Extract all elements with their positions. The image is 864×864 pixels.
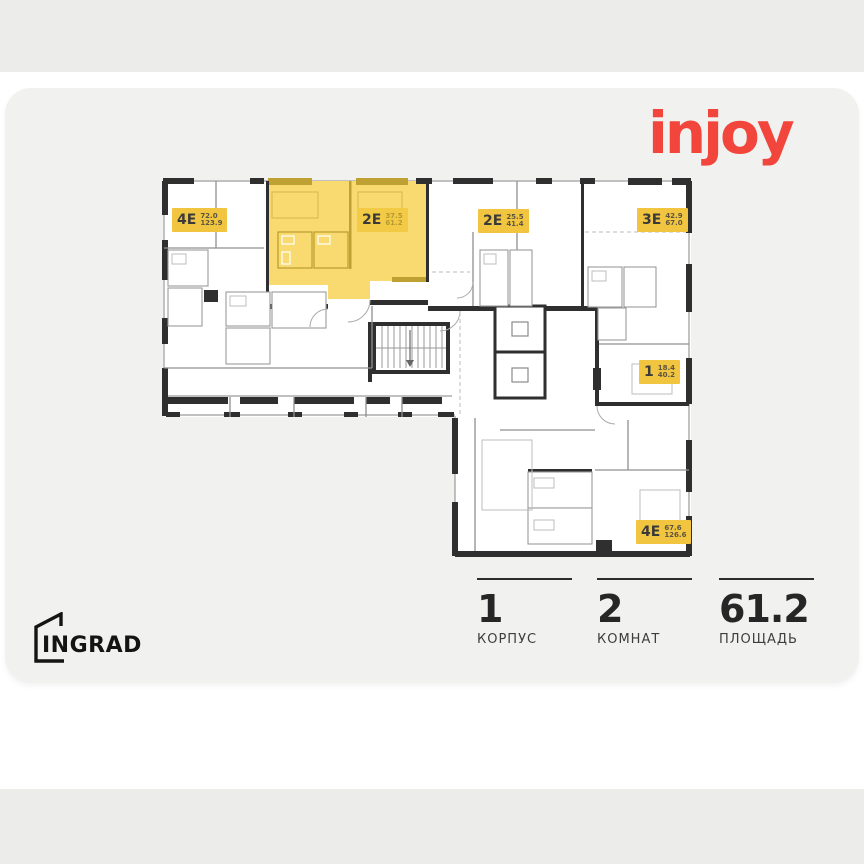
stat-label: КОРПУС (477, 632, 587, 647)
stat-divider (477, 578, 572, 580)
injoy-logo: injoy (648, 104, 848, 162)
unit-area-total: 61.2 (385, 220, 402, 228)
unit-label: 2Е (362, 213, 381, 227)
unit-badge-2e-middle: 2Е 25.541.4 (478, 209, 529, 233)
unit-area-total: 123.9 (200, 220, 222, 228)
unit-label: 2Е (483, 214, 502, 228)
ingrad-logo: INGRAD (33, 612, 142, 664)
background-strip-top (0, 0, 864, 72)
listing-floorplan-image: { "page": { "top_strip_color": "#ececeb"… (0, 0, 864, 864)
stat-divider (719, 578, 814, 580)
stat-value: 61.2 (719, 590, 829, 628)
stat-value: 2 (597, 590, 707, 628)
unit-label: 1 (644, 365, 654, 379)
stat-label: ПЛОЩАДЬ (719, 632, 829, 647)
stat-komnat: 2 КОМНАТ (597, 578, 707, 647)
unit-area-total: 126.6 (664, 532, 686, 540)
floorplan-drawing: 4Е 72.0123.9 2Е 37.561.2 2Е 25.541.4 3Е … (160, 172, 695, 562)
stat-ploshchad: 61.2 ПЛОЩАДЬ (719, 578, 829, 647)
ingrad-logo-text: INGRAD (42, 635, 142, 657)
background-strip-bottom (0, 789, 864, 864)
unit-badge-1: 1 18.440.2 (639, 360, 680, 384)
stat-label: КОМНАТ (597, 632, 707, 647)
unit-badge-2e-selected: 2Е 37.561.2 (357, 208, 408, 232)
floorplan-walls (160, 172, 695, 562)
stat-divider (597, 578, 692, 580)
stat-value: 1 (477, 590, 587, 628)
unit-area-total: 67.0 (665, 220, 682, 228)
unit-area-total: 41.4 (506, 221, 523, 229)
stat-korpus: 1 КОРПУС (477, 578, 587, 647)
unit-area-total: 40.2 (658, 372, 675, 380)
unit-badge-4e-left: 4Е 72.0123.9 (172, 208, 227, 232)
unit-label: 4Е (177, 213, 196, 227)
unit-badge-3e: 3Е 42.967.0 (637, 208, 688, 232)
unit-badge-4e-bottom: 4Е 67.6126.6 (636, 520, 691, 544)
unit-label: 3Е (642, 213, 661, 227)
unit-label: 4Е (641, 525, 660, 539)
